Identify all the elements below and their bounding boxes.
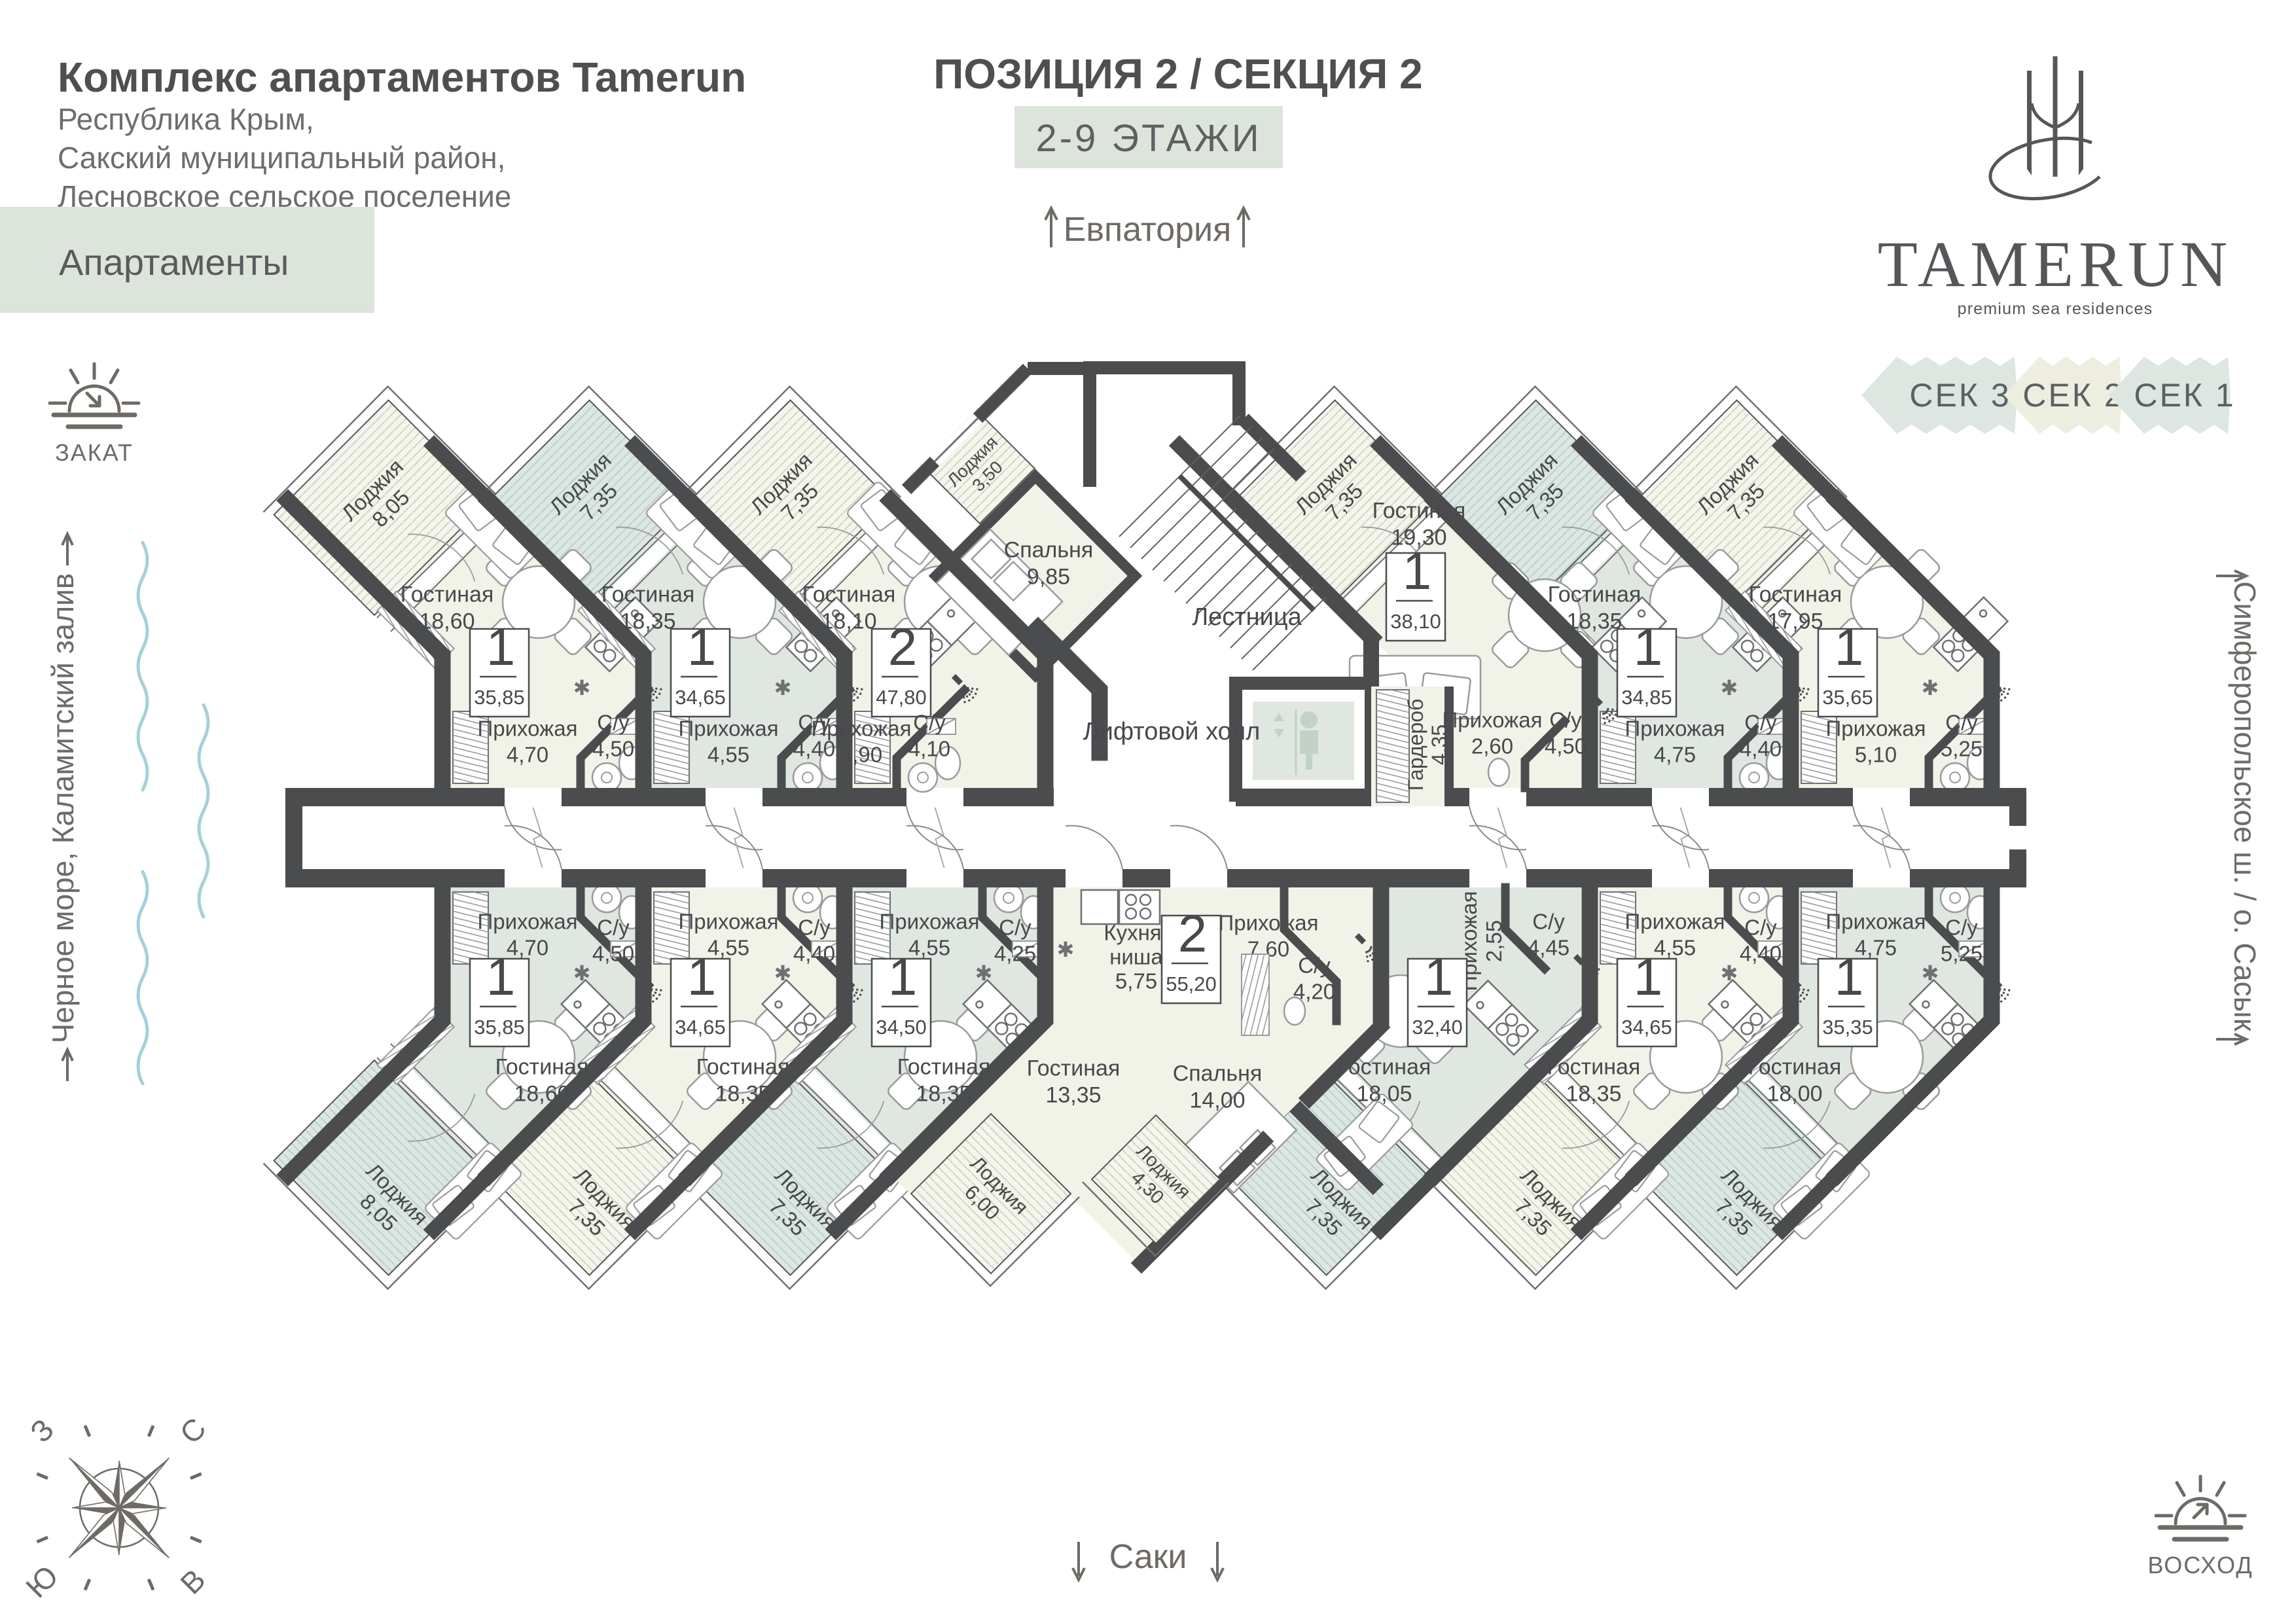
svg-text:38,10: 38,10 <box>1390 610 1441 633</box>
svg-text:Прихожая: Прихожая <box>1219 911 1319 935</box>
svg-text:18,60: 18,60 <box>419 609 475 633</box>
svg-text:Гостиная: Гостиная <box>1748 1055 1842 1080</box>
svg-text:Апартаменты: Апартаменты <box>59 241 289 283</box>
svg-text:35,65: 35,65 <box>1822 686 1873 709</box>
svg-text:5,25: 5,25 <box>1941 941 1982 965</box>
svg-text:Гостиная: Гостиная <box>1547 1055 1641 1080</box>
svg-text:1: 1 <box>1403 542 1432 600</box>
svg-text:ниша: ниша <box>1109 945 1163 969</box>
svg-text:4,75: 4,75 <box>1654 742 1696 766</box>
svg-text:Прихожая: Прихожая <box>1826 717 1926 741</box>
svg-text:Гостиная: Гостиная <box>1338 1055 1431 1080</box>
svg-text:TAMERUN: TAMERUN <box>1878 228 2233 300</box>
svg-text:Сакский муниципальный район,: Сакский муниципальный район, <box>58 141 505 175</box>
svg-text:Кухня-: Кухня- <box>1103 921 1168 945</box>
svg-text:С/у: С/у <box>1744 916 1777 940</box>
svg-text:✱: ✱ <box>1922 676 1939 700</box>
svg-text:4,55: 4,55 <box>708 935 749 959</box>
svg-text:18,60: 18,60 <box>514 1081 569 1106</box>
svg-text:2: 2 <box>1178 904 1208 963</box>
svg-text:18,00: 18,00 <box>1767 1081 1822 1106</box>
svg-text:Черное море, Каламитский залив: Черное море, Каламитский залив <box>46 573 80 1044</box>
svg-text:✱: ✱ <box>1057 938 1075 961</box>
svg-text:Прихожая: Прихожая <box>478 910 578 934</box>
svg-text:13,35: 13,35 <box>1045 1082 1101 1107</box>
svg-text:Гостиная: Гостиная <box>802 582 896 607</box>
svg-text:Гостиная: Гостиная <box>1372 499 1466 524</box>
svg-text:✱: ✱ <box>975 961 993 985</box>
svg-text:Лестница: Лестница <box>1192 603 1302 631</box>
svg-text:С/у: С/у <box>1945 916 1978 940</box>
svg-text:34,65: 34,65 <box>675 1016 726 1039</box>
svg-text:Гостиная: Гостиная <box>696 1055 790 1080</box>
svg-text:✱: ✱ <box>1721 676 1738 700</box>
svg-text:Евпатория: Евпатория <box>1064 211 1232 249</box>
svg-text:✱: ✱ <box>1922 961 1939 985</box>
svg-text:4,55: 4,55 <box>1654 935 1696 959</box>
svg-text:Гостиная: Гостиная <box>1027 1056 1121 1081</box>
svg-text:4,25: 4,25 <box>994 941 1036 965</box>
svg-text:1: 1 <box>687 618 717 676</box>
svg-text:5,25: 5,25 <box>1941 736 1982 760</box>
svg-text:✱: ✱ <box>1721 961 1738 985</box>
svg-text:Комплекс апартаментов Tamerun: Комплекс апартаментов Tamerun <box>58 54 746 101</box>
svg-text:С/у: С/у <box>999 916 1031 940</box>
svg-text:18,35: 18,35 <box>715 1081 770 1106</box>
svg-text:Республика Крым,: Республика Крым, <box>58 102 314 136</box>
svg-text:1: 1 <box>486 618 516 676</box>
svg-text:С/у: С/у <box>1744 711 1777 735</box>
svg-text:Прихожая: Прихожая <box>478 717 578 741</box>
svg-text:✱: ✱ <box>774 676 792 700</box>
svg-text:4,40: 4,40 <box>793 941 835 965</box>
svg-text:4,40: 4,40 <box>1740 941 1782 965</box>
svg-text:✱: ✱ <box>573 961 591 985</box>
svg-text:1: 1 <box>1424 948 1454 1006</box>
svg-text:1: 1 <box>1835 618 1864 676</box>
svg-text:18,10: 18,10 <box>821 609 876 633</box>
svg-text:4,70: 4,70 <box>507 935 548 959</box>
svg-text:Прихожая: Прихожая <box>1443 708 1543 732</box>
svg-text:Лифтовой холл: Лифтовой холл <box>1083 718 1261 745</box>
svg-text:С/у: С/у <box>798 916 831 940</box>
svg-text:18,35: 18,35 <box>1566 609 1622 633</box>
svg-text:5,75: 5,75 <box>1115 969 1157 993</box>
svg-text:34,65: 34,65 <box>675 686 726 709</box>
svg-text:Гостиная: Гостиная <box>897 1055 991 1080</box>
svg-text:18,35: 18,35 <box>620 609 675 633</box>
svg-text:СЕК 1: СЕК 1 <box>2134 377 2235 414</box>
svg-text:4,50: 4,50 <box>592 736 634 760</box>
svg-text:2,60: 2,60 <box>1471 734 1513 758</box>
svg-text:✱: ✱ <box>774 961 792 985</box>
svg-text:premium sea residences: premium sea residences <box>1958 300 2153 318</box>
svg-text:35,85: 35,85 <box>474 1016 525 1039</box>
svg-text:Симферопольское ш. / о. Сасык: Симферопольское ш. / о. Сасык <box>2228 581 2262 1032</box>
svg-text:4,40: 4,40 <box>1740 736 1782 760</box>
svg-text:47,80: 47,80 <box>876 686 927 709</box>
svg-text:Прихожая: Прихожая <box>880 910 980 934</box>
svg-text:Саки: Саки <box>1109 1538 1187 1576</box>
svg-text:18,05: 18,05 <box>1356 1081 1412 1106</box>
svg-text:35,35: 35,35 <box>1822 1016 1873 1039</box>
svg-text:34,65: 34,65 <box>1621 1016 1672 1039</box>
svg-text:4,90: 4,90 <box>840 742 882 766</box>
svg-text:Прихожая: Прихожая <box>1826 910 1926 934</box>
svg-text:Гостиная: Гостиная <box>601 582 695 607</box>
svg-text:4,70: 4,70 <box>507 742 548 766</box>
svg-text:Гардероб: Гардероб <box>1404 699 1427 791</box>
svg-text:✱: ✱ <box>573 676 591 700</box>
svg-text:5,10: 5,10 <box>1855 742 1897 766</box>
svg-text:18,35: 18,35 <box>1566 1081 1621 1106</box>
svg-text:34,50: 34,50 <box>876 1016 927 1039</box>
svg-text:9,85: 9,85 <box>1027 564 1070 589</box>
svg-text:18,35: 18,35 <box>916 1081 971 1106</box>
svg-text:34,85: 34,85 <box>1621 686 1672 709</box>
svg-text:ЗАКАТ: ЗАКАТ <box>55 439 134 466</box>
svg-text:4,55: 4,55 <box>908 935 950 959</box>
svg-text:С/у: С/у <box>1532 910 1565 934</box>
svg-text:17,95: 17,95 <box>1767 609 1823 633</box>
svg-text:14,00: 14,00 <box>1189 1088 1245 1113</box>
svg-text:4,10: 4,10 <box>908 736 950 760</box>
svg-text:Прихожая: Прихожая <box>1625 717 1725 741</box>
svg-text:СЕК 3: СЕК 3 <box>1909 377 2011 414</box>
svg-text:32,40: 32,40 <box>1412 1016 1463 1039</box>
svg-text:Прихожая: Прихожая <box>1625 910 1725 934</box>
svg-text:Гостиная: Гостиная <box>1749 582 1842 607</box>
svg-text:55,20: 55,20 <box>1166 972 1217 995</box>
svg-text:Гостиная: Гостиная <box>401 582 494 607</box>
svg-text:С/у: С/у <box>913 711 946 735</box>
svg-text:35,85: 35,85 <box>474 686 525 709</box>
svg-text:4,75: 4,75 <box>1855 935 1897 959</box>
svg-text:Прихожая: Прихожая <box>812 717 912 741</box>
svg-text:Гостиная: Гостиная <box>1548 582 1641 607</box>
svg-text:Спальня: Спальня <box>1004 538 1094 563</box>
svg-text:С/у: С/у <box>597 711 630 735</box>
svg-text:Спальня: Спальня <box>1173 1061 1263 1086</box>
svg-text:2-9 ЭТАЖИ: 2-9 ЭТАЖИ <box>1035 117 1261 160</box>
svg-text:Прихожая: Прихожая <box>679 717 779 741</box>
svg-text:ПОЗИЦИЯ 2 / СЕКЦИЯ 2: ПОЗИЦИЯ 2 / СЕКЦИЯ 2 <box>933 50 1422 98</box>
svg-text:4,55: 4,55 <box>708 742 749 766</box>
svg-text:2: 2 <box>888 618 918 676</box>
svg-text:С/у: С/у <box>1945 711 1978 735</box>
svg-text:Гостиная: Гостиная <box>495 1055 589 1080</box>
svg-text:Прихожая: Прихожая <box>679 910 779 934</box>
svg-text:С/у: С/у <box>597 916 630 940</box>
svg-text:ВОСХОД: ВОСХОД <box>2147 1552 2253 1578</box>
svg-text:1: 1 <box>1634 618 1663 676</box>
svg-text:4,50: 4,50 <box>592 941 634 965</box>
